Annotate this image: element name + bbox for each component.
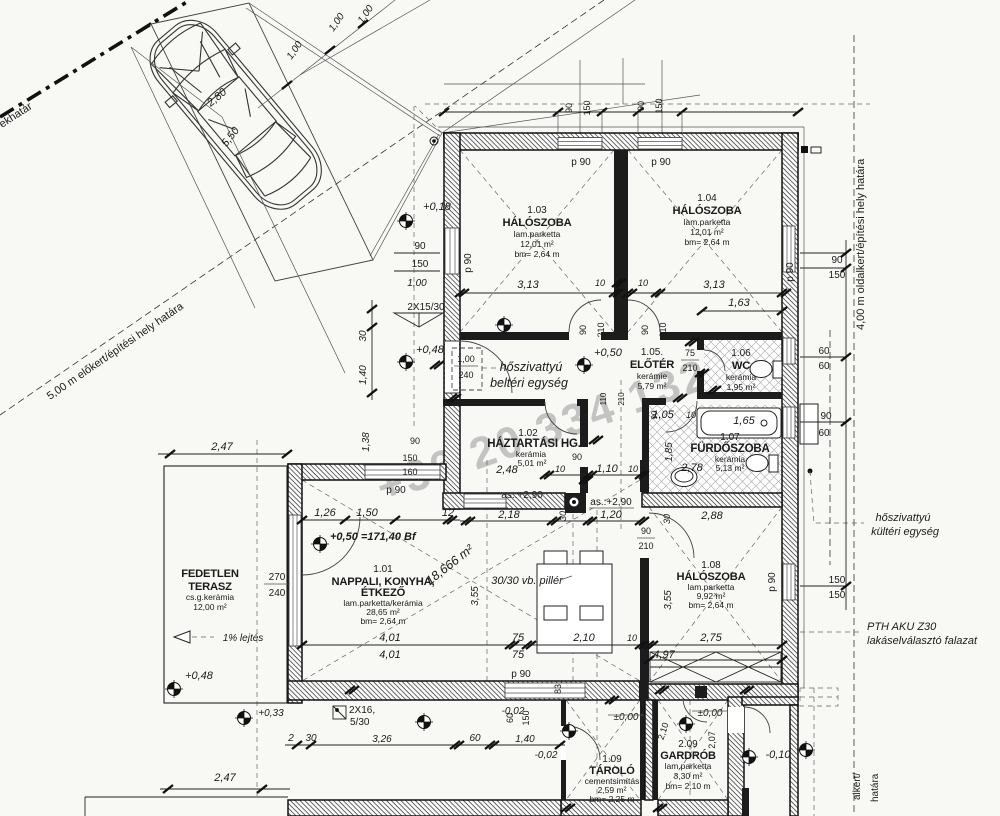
svg-text:1,26: 1,26 xyxy=(314,507,336,519)
svg-text:+0,48: +0,48 xyxy=(185,670,214,682)
svg-text:HÁLÓSZOBA: HÁLÓSZOBA xyxy=(672,204,741,217)
svg-text:1,40: 1,40 xyxy=(515,734,535,745)
svg-text:60: 60 xyxy=(505,713,515,723)
svg-text:10: 10 xyxy=(595,278,605,288)
svg-text:3,13: 3,13 xyxy=(703,279,725,291)
svg-text:+0,50 =171,40 Bf: +0,50 =171,40 Bf xyxy=(330,531,417,543)
svg-text:5/30: 5/30 xyxy=(350,717,370,728)
svg-text:2,47: 2,47 xyxy=(210,441,233,453)
svg-text:3,55: 3,55 xyxy=(470,586,481,606)
svg-text:10: 10 xyxy=(627,633,637,643)
svg-text:5,01 m²: 5,01 m² xyxy=(518,458,547,468)
svg-text:10: 10 xyxy=(628,464,638,474)
svg-text:+0,48: +0,48 xyxy=(416,344,445,356)
svg-text:+0,18: +0,18 xyxy=(423,201,452,213)
svg-text:kerámia: kerámia xyxy=(726,372,757,382)
svg-text:90: 90 xyxy=(640,325,650,335)
svg-text:90: 90 xyxy=(410,436,420,446)
svg-text:10: 10 xyxy=(686,410,696,420)
svg-text:90: 90 xyxy=(641,526,651,536)
svg-text:1% lejtés: 1% lejtés xyxy=(223,633,264,644)
svg-text:240: 240 xyxy=(269,588,286,599)
svg-text:1,00: 1,00 xyxy=(407,278,427,289)
svg-text:3,55: 3,55 xyxy=(663,590,674,610)
svg-text:30: 30 xyxy=(662,514,672,524)
svg-text:2.09: 2.09 xyxy=(678,739,698,750)
svg-text:1.05.: 1.05. xyxy=(641,347,663,358)
svg-text:2: 2 xyxy=(287,733,294,744)
svg-text:p 90: p 90 xyxy=(386,485,406,496)
svg-text:75: 75 xyxy=(685,348,695,358)
svg-text:lam.parketta: lam.parketta xyxy=(665,761,712,771)
svg-text:2,07: 2,07 xyxy=(707,731,717,749)
svg-text:4,01: 4,01 xyxy=(379,649,400,661)
svg-text:90: 90 xyxy=(636,101,646,111)
svg-text:1.09: 1.09 xyxy=(602,754,622,765)
svg-text:2,10: 2,10 xyxy=(572,632,595,644)
svg-text:FEDETLEN: FEDETLEN xyxy=(181,568,239,580)
svg-text:2X15/30: 2X15/30 xyxy=(407,302,445,313)
svg-text:±0,00: ±0,00 xyxy=(614,712,639,723)
svg-text:30: 30 xyxy=(358,330,369,342)
svg-text:+0,50: +0,50 xyxy=(594,347,623,359)
svg-text:150: 150 xyxy=(654,98,664,113)
svg-text:WC: WC xyxy=(732,360,750,372)
svg-text:150: 150 xyxy=(582,100,592,115)
svg-text:2,18: 2,18 xyxy=(497,509,520,521)
svg-text:1.04: 1.04 xyxy=(697,193,717,204)
svg-text:60: 60 xyxy=(818,428,830,439)
svg-text:±0,00: ±0,00 xyxy=(698,708,723,719)
svg-text:2X16,: 2X16, xyxy=(349,705,375,716)
svg-text:60: 60 xyxy=(818,346,830,357)
svg-text:3,26: 3,26 xyxy=(372,734,392,745)
svg-text:210: 210 xyxy=(658,322,668,337)
svg-text:5,79 m²: 5,79 m² xyxy=(638,381,667,391)
svg-text:p 90: p 90 xyxy=(571,157,591,168)
svg-text:90: 90 xyxy=(650,410,659,419)
svg-text:bm= 2,64 m: bm= 2,64 m xyxy=(688,600,733,610)
svg-text:1.01: 1.01 xyxy=(373,564,393,575)
svg-text:10: 10 xyxy=(555,464,565,474)
svg-text:240: 240 xyxy=(458,370,473,380)
svg-text:bm= 2,64 m: bm= 2,64 m xyxy=(360,616,405,626)
svg-text:p 90: p 90 xyxy=(767,572,778,592)
svg-text:határa: határa xyxy=(870,773,881,802)
svg-text:1,85: 1,85 xyxy=(664,442,675,462)
svg-text:cs.g.kerámia: cs.g.kerámia xyxy=(186,592,234,602)
svg-text:4,97: 4,97 xyxy=(653,649,675,661)
svg-text:90: 90 xyxy=(820,411,832,422)
svg-text:1,38: 1,38 xyxy=(361,432,372,452)
svg-text:160: 160 xyxy=(402,467,417,477)
svg-text:bm= 2,10 m: bm= 2,10 m xyxy=(665,781,710,791)
svg-text:hőszivattyú: hőszivattyú xyxy=(875,512,930,524)
svg-text:alkert/: alkert/ xyxy=(852,773,863,800)
svg-text:2,75: 2,75 xyxy=(699,632,722,644)
svg-text:2,78: 2,78 xyxy=(680,462,703,474)
svg-text:p 90: p 90 xyxy=(651,157,671,168)
svg-text:beltéri egység: beltéri egység xyxy=(490,376,568,390)
svg-text:-0,10: -0,10 xyxy=(765,749,791,761)
svg-text:bm= 2,25 m: bm= 2,25 m xyxy=(589,794,634,804)
svg-text:-0,02: -0,02 xyxy=(535,750,558,761)
svg-text:12,01 m²: 12,01 m² xyxy=(690,227,724,237)
svg-text:4,00 m oldalkert/építési hely: 4,00 m oldalkert/építési hely határa xyxy=(855,158,867,330)
svg-text:12,01 m²: 12,01 m² xyxy=(520,239,554,249)
svg-text:kültéri egység: kültéri egység xyxy=(871,526,940,538)
svg-text:1.07: 1.07 xyxy=(720,432,740,443)
svg-text:4,01: 4,01 xyxy=(379,632,400,644)
svg-text:3,13: 3,13 xyxy=(517,279,539,291)
svg-text:as.:+2,90: as.:+2,90 xyxy=(590,497,632,508)
svg-text:2,48: 2,48 xyxy=(495,464,518,476)
svg-text:1,10: 1,10 xyxy=(596,463,618,475)
svg-text:p 90: p 90 xyxy=(463,253,474,273)
svg-text:p 90: p 90 xyxy=(511,669,531,680)
svg-text:lam.parketta: lam.parketta xyxy=(684,217,731,227)
svg-text:3,30 m²: 3,30 m² xyxy=(674,771,703,781)
svg-text:1.08: 1.08 xyxy=(701,560,721,571)
svg-text:HÁLÓSZOBA: HÁLÓSZOBA xyxy=(502,216,571,229)
svg-text:30: 30 xyxy=(558,511,568,521)
svg-text:1,95 m²: 1,95 m² xyxy=(727,382,756,392)
svg-text:150: 150 xyxy=(412,259,429,270)
svg-text:30: 30 xyxy=(305,733,317,744)
svg-text:1.06: 1.06 xyxy=(731,348,751,359)
svg-text:1.03: 1.03 xyxy=(527,205,547,216)
svg-text:210: 210 xyxy=(638,541,653,551)
svg-text:60: 60 xyxy=(469,733,481,744)
svg-text:2,47: 2,47 xyxy=(213,772,236,784)
svg-text:kerámie: kerámie xyxy=(637,371,668,381)
svg-text:90: 90 xyxy=(578,325,588,335)
svg-text:270: 270 xyxy=(269,572,286,583)
svg-text:12,00 m²: 12,00 m² xyxy=(193,602,227,612)
svg-text:150: 150 xyxy=(829,270,846,281)
svg-text:5,13 m²: 5,13 m² xyxy=(716,463,745,473)
svg-text:1,20: 1,20 xyxy=(600,509,622,521)
svg-text:10: 10 xyxy=(638,278,648,288)
svg-text:bm= 2,64 m: bm= 2,64 m xyxy=(684,237,729,247)
svg-text:12: 12 xyxy=(442,507,454,519)
svg-text:1,00: 1,00 xyxy=(457,354,475,364)
svg-text:150: 150 xyxy=(521,710,531,725)
svg-text:90: 90 xyxy=(572,452,582,462)
svg-text:75: 75 xyxy=(512,632,525,644)
svg-text:30/30 vb. pillér: 30/30 vb. pillér xyxy=(491,575,564,587)
svg-text:lam.parketta: lam.parketta xyxy=(514,229,561,239)
svg-text:110: 110 xyxy=(599,392,608,405)
svg-text:as.:+2,90: as.:+2,90 xyxy=(501,490,543,501)
svg-text:bm= 2,64 m: bm= 2,64 m xyxy=(514,249,559,259)
svg-text:hőszivattyú: hőszivattyú xyxy=(500,360,563,374)
svg-text:lakáselválasztó falazat: lakáselválasztó falazat xyxy=(867,635,978,647)
svg-text:90: 90 xyxy=(414,241,426,252)
svg-text:90: 90 xyxy=(564,103,574,113)
svg-text:2,88: 2,88 xyxy=(700,510,723,522)
svg-text:83: 83 xyxy=(553,684,563,694)
svg-text:90: 90 xyxy=(831,255,843,266)
svg-text:150: 150 xyxy=(829,575,846,586)
svg-text:60: 60 xyxy=(818,361,830,372)
svg-text:210: 210 xyxy=(682,363,697,373)
svg-text:+0,33: +0,33 xyxy=(258,708,284,719)
svg-text:PTH AKU Z30: PTH AKU Z30 xyxy=(867,621,937,633)
svg-text:ELŐTÉR: ELŐTÉR xyxy=(630,358,674,371)
svg-text:1,50: 1,50 xyxy=(356,507,378,519)
svg-text:210: 210 xyxy=(596,322,606,337)
svg-text:p 90: p 90 xyxy=(785,262,796,282)
svg-text:150: 150 xyxy=(829,590,846,601)
svg-text:210: 210 xyxy=(617,392,626,406)
svg-text:1,65: 1,65 xyxy=(733,415,755,427)
svg-text:1,63: 1,63 xyxy=(728,297,750,309)
svg-text:75: 75 xyxy=(512,649,525,661)
svg-text:150: 150 xyxy=(402,453,417,463)
svg-text:1,40: 1,40 xyxy=(358,365,369,385)
